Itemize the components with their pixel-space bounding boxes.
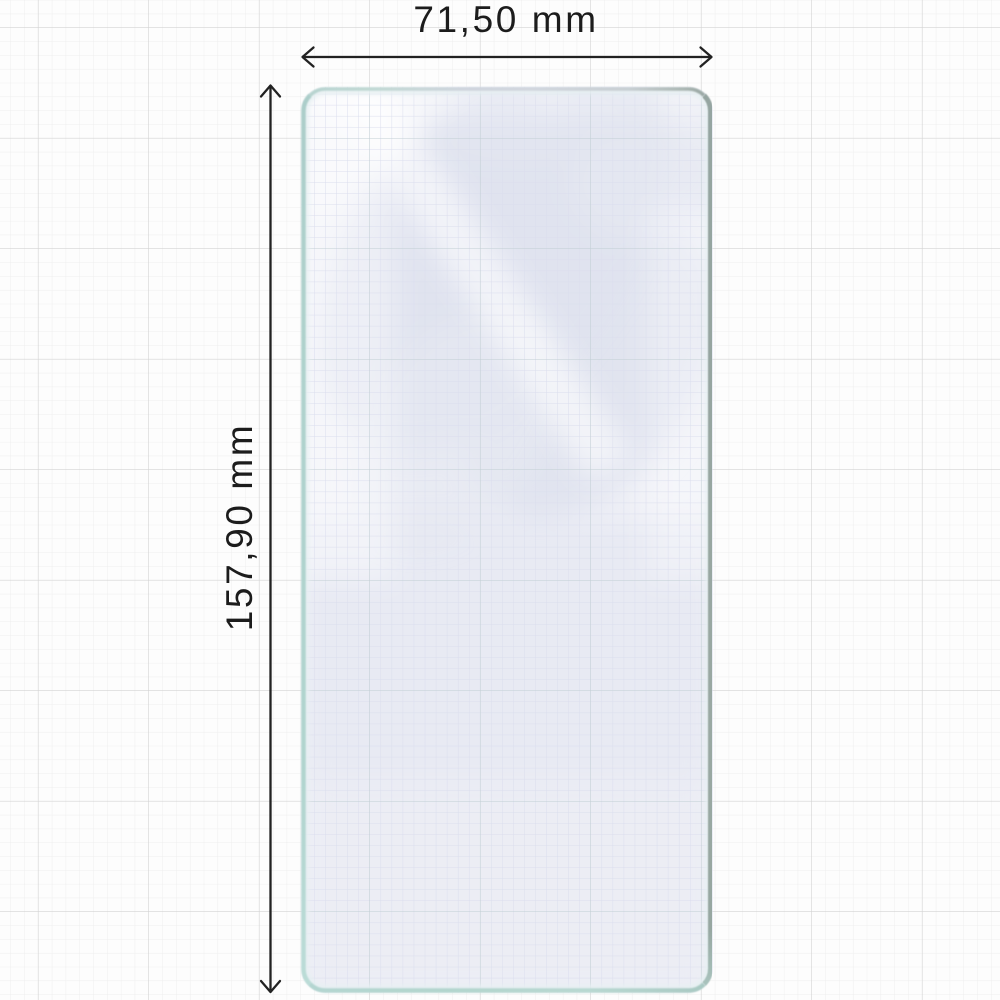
svg-text:157,90 mm: 157,90 mm <box>219 423 260 632</box>
svg-text:71,50 mm: 71,50 mm <box>413 0 598 40</box>
